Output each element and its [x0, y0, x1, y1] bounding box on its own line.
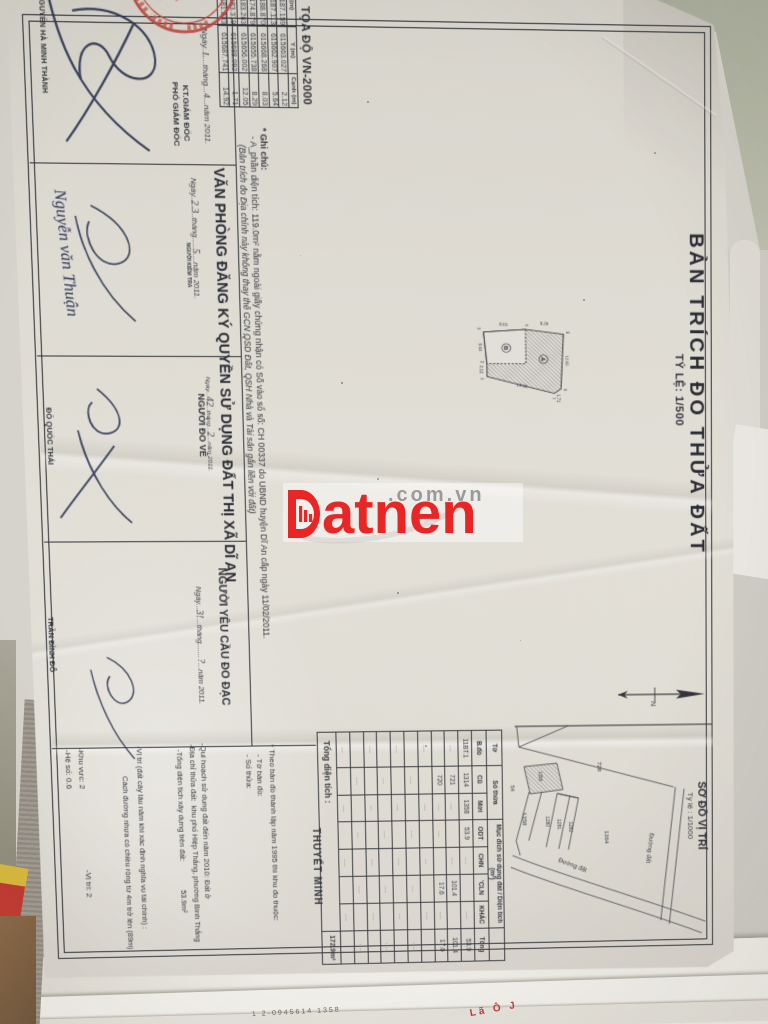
- svg-text:N: N: [649, 701, 657, 706]
- svg-text:728: 728: [596, 762, 603, 772]
- svg-text:6: 6: [563, 389, 568, 392]
- svg-text:1358: 1358: [538, 771, 543, 781]
- svg-text:14.92: 14.92: [516, 382, 528, 389]
- svg-text:1280: 1280: [544, 816, 550, 827]
- svg-text:1282: 1282: [567, 821, 573, 832]
- svg-text:54: 54: [509, 785, 515, 792]
- svg-text:1281: 1281: [556, 819, 562, 830]
- svg-text:12.05: 12.05: [565, 356, 570, 367]
- svg-text:1358: 1358: [521, 812, 528, 826]
- svg-text:1: 1: [480, 378, 485, 381]
- svg-text:1364: 1364: [603, 831, 610, 845]
- svg-text:A: A: [539, 357, 546, 362]
- svg-text:Đường đất: Đường đất: [557, 855, 588, 874]
- svg-text:7: 7: [551, 397, 556, 400]
- svg-text:Đường đất: Đường đất: [644, 833, 656, 864]
- svg-text:SƠ ĐỒ VỊ TRÍ: SƠ ĐỒ VỊ TRÍ: [696, 781, 708, 850]
- svg-text:8.29: 8.29: [540, 321, 549, 326]
- svg-text:Tỷ lệ : 1/1000: Tỷ lệ : 1/1000: [686, 792, 695, 839]
- svg-text:2: 2: [480, 361, 485, 364]
- svg-text:3: 3: [477, 327, 482, 330]
- svg-text:8.03: 8.03: [499, 322, 508, 327]
- svg-text:2.12: 2.12: [479, 365, 484, 374]
- svg-text:5.64: 5.64: [478, 343, 483, 352]
- svg-text:4: 4: [524, 324, 529, 327]
- svg-text:B: B: [502, 346, 509, 351]
- svg-text:5: 5: [565, 331, 570, 334]
